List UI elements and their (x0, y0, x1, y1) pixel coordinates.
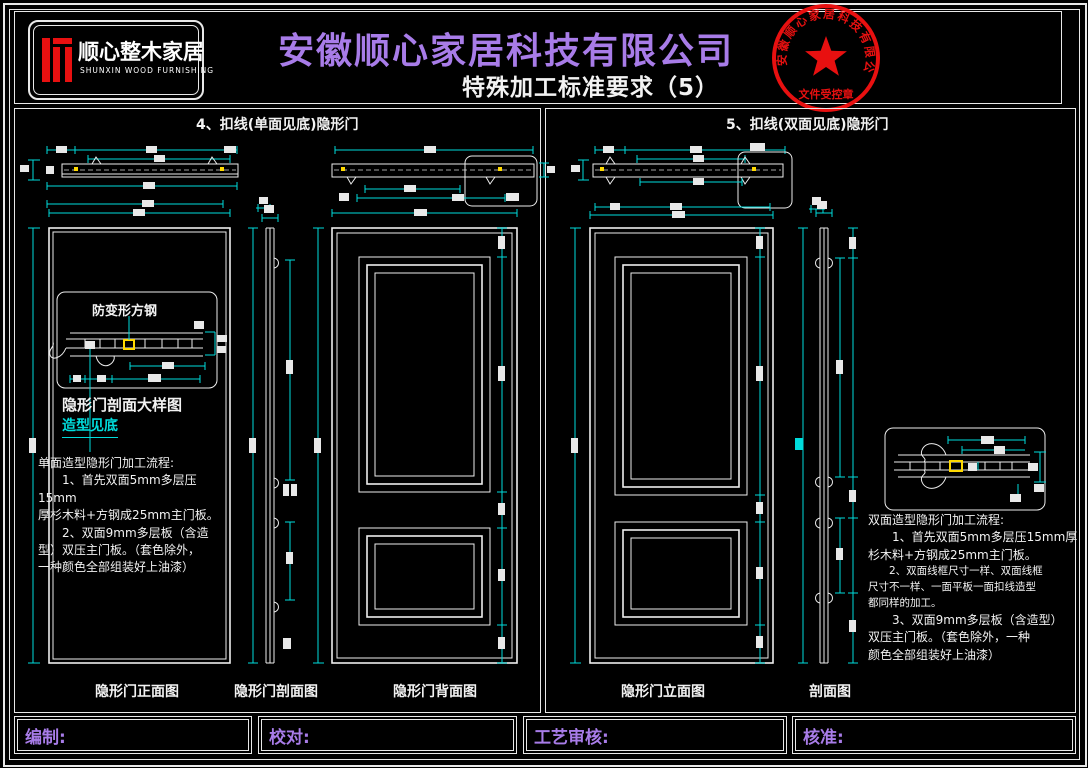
view-label-front: 隐形门正面图 (95, 681, 179, 701)
right-process-text-2: 2、双面线框尺寸一样、双面线框 尺寸不一样、一面平板一面扣线造型 都同样的加工。 (868, 564, 1080, 611)
footer-box-compiler: 编制: (14, 716, 252, 754)
footer-field-approval: 核准: (803, 723, 844, 748)
footer-field-process-review: 工艺审核: (534, 723, 609, 748)
view-label-section: 隐形门剖面图 (234, 681, 318, 701)
view-label-right-section: 剖面图 (809, 681, 851, 701)
footer-box-approval: 核准: (792, 716, 1076, 754)
cad-sheet: 顺心整木家居 SHUNXIN WOOD FURNISHING 安徽顺心家居科技有… (0, 0, 1088, 768)
steel-callout-label: 防变形方钢 (92, 300, 157, 319)
footer-field-compiler: 编制: (25, 723, 66, 748)
footer-box-proofread: 校对: (258, 716, 517, 754)
view-label-back: 隐形门背面图 (393, 681, 477, 701)
footer-box-process-review: 工艺审核: (523, 716, 787, 754)
view-label-elevation: 隐形门立面图 (621, 681, 705, 701)
footer-field-proofread: 校对: (269, 723, 310, 748)
left-process-text: 单面造型隐形门加工流程: 1、首先双面5mm多层压15mm 厚杉木料+方钢成25… (38, 455, 234, 577)
section-detail-title: 隐形门剖面大样图 (62, 394, 182, 415)
right-process-text-1: 双面造型隐形门加工流程: 1、首先双面5mm多层压15mm厚 杉木料+方钢成25… (868, 512, 1080, 564)
right-process-text-3: 3、双面9mm多层板（含造型） 双压主门板。（套色除外，一种 颜色全部组装好上油… (868, 612, 1080, 664)
section-detail-note: 造型见底 (62, 415, 118, 438)
